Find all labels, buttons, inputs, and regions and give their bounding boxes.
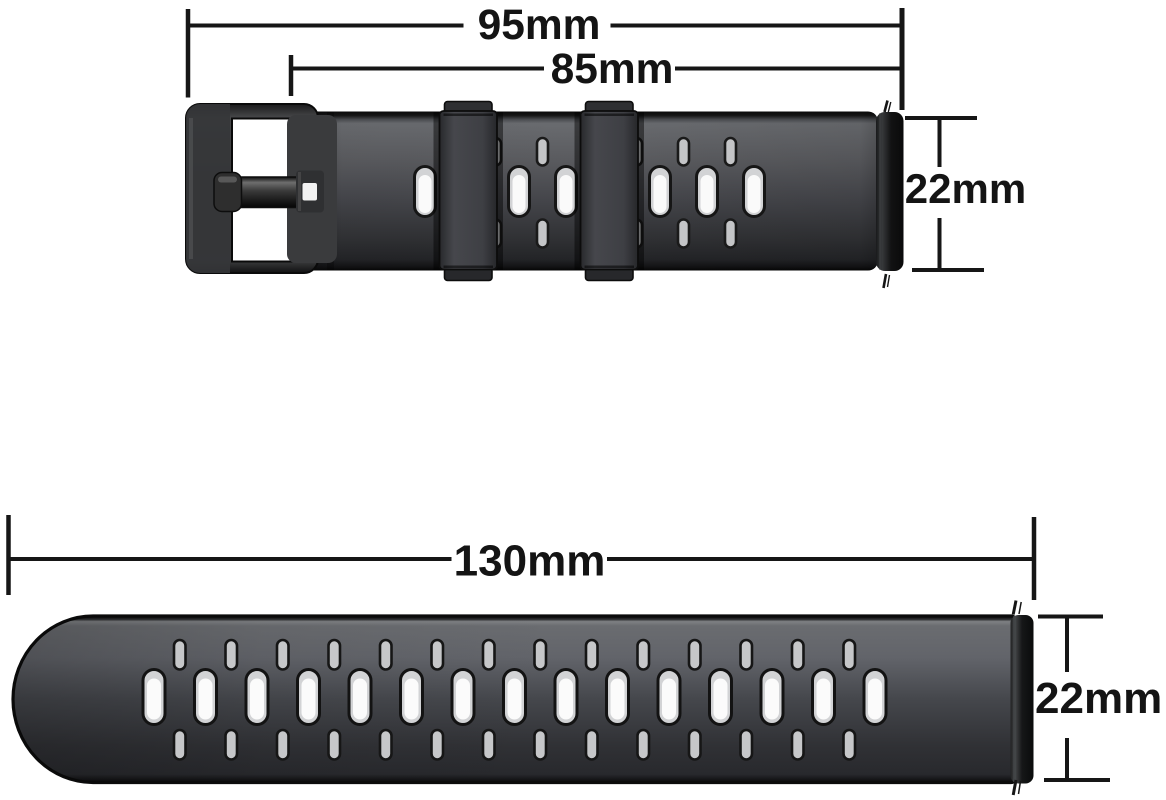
svg-text:22mm: 22mm [905, 165, 1026, 212]
svg-text:130mm: 130mm [454, 537, 606, 586]
svg-text:95mm: 95mm [478, 2, 601, 49]
svg-text:22mm: 22mm [1035, 674, 1162, 723]
svg-text:85mm: 85mm [551, 46, 674, 93]
